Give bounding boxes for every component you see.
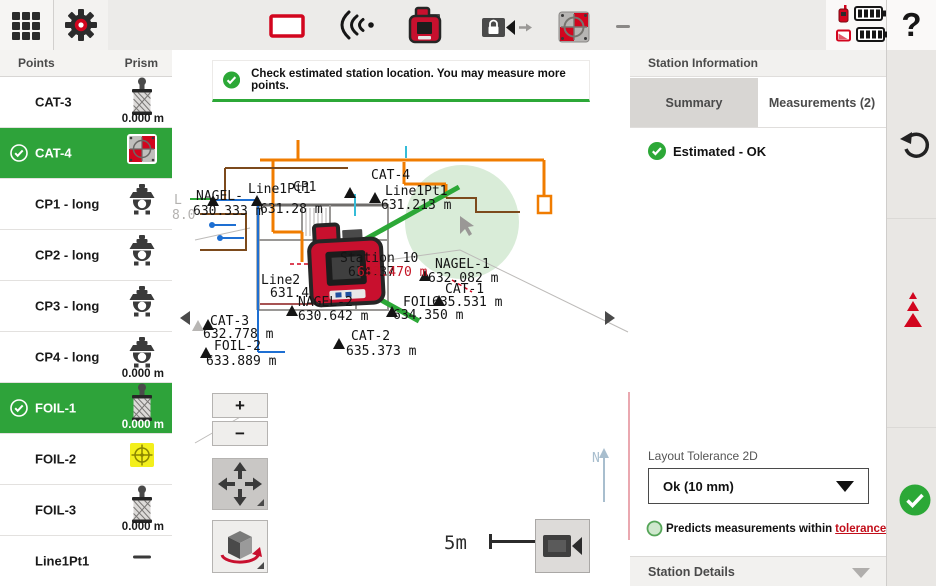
- station-button[interactable]: [406, 6, 444, 49]
- signal-button[interactable]: [340, 9, 380, 46]
- map-point-label: 630.642 m: [298, 309, 369, 324]
- point-row[interactable]: CP3 - long: [0, 281, 172, 332]
- signal-waves-icon: [340, 9, 380, 41]
- prism-icon-host: [124, 437, 160, 473]
- points-column-header: Points: [18, 56, 55, 70]
- undo-icon: [898, 126, 934, 162]
- station-device-glyph-icon: [838, 5, 849, 23]
- status-check-icon: [648, 142, 666, 160]
- tolerance-dropdown[interactable]: Ok (10 mm): [648, 468, 869, 504]
- map-point-label: 631.213 m: [381, 198, 452, 213]
- point-row[interactable]: Line1Pt1: [0, 536, 172, 586]
- confirm-check-icon: [898, 483, 932, 517]
- north-arrow-icon: N: [592, 448, 609, 502]
- tolerance-link[interactable]: tolerance: [835, 523, 886, 535]
- target-plate-icon: [127, 134, 157, 164]
- layout-rectangle-icon: [268, 13, 306, 39]
- target-yellow-icon: [129, 442, 155, 468]
- map-point-label: CAT-2: [351, 329, 390, 344]
- red-triangles-icon: [898, 292, 928, 338]
- point-row[interactable]: CP1 - long: [0, 179, 172, 230]
- map-point-label: 633.470 m: [357, 265, 428, 280]
- layout-tolerance-label: Layout Tolerance 2D: [648, 449, 758, 463]
- app-window: ? Points Prism CAT-3 0.000 m: [0, 0, 936, 586]
- point-list: CAT-3 0.000 m CAT-4: [0, 77, 172, 586]
- map-point-label: 631.28 m: [260, 202, 323, 217]
- point-label: FOIL-3: [35, 503, 76, 518]
- prism-long-icon: [125, 285, 159, 319]
- prism-icon-host: [124, 80, 160, 116]
- station-information-header: Station Information: [630, 50, 886, 77]
- message-text: Check estimated station location. You ma…: [251, 68, 589, 92]
- map-point-label: L: [174, 193, 182, 208]
- prism-long-icon: [125, 234, 159, 268]
- map-point-label: 8.0: [172, 208, 195, 223]
- battery-status: [826, 0, 887, 50]
- map-point-label: NAGEL-: [196, 189, 243, 204]
- sidebar-header: Points Prism: [0, 50, 172, 77]
- point-label: CAT-4: [35, 146, 72, 161]
- grid-menu-icon: [12, 12, 40, 40]
- selected-check-icon: [9, 398, 29, 418]
- point-row[interactable]: CP2 - long: [0, 230, 172, 281]
- point-row[interactable]: FOIL-3 0.000 m: [0, 485, 172, 536]
- total-station-icon: [406, 6, 444, 44]
- top-toolbar: ?: [0, 0, 936, 50]
- collapse-sidebar-arrow[interactable]: [180, 311, 190, 325]
- map-point-label: CAT-4: [371, 168, 410, 183]
- map-point-label: 631.4: [270, 286, 309, 301]
- check-circle-icon: [223, 71, 240, 89]
- scale-bar: [490, 540, 536, 543]
- rotate-3d-cube-icon: [216, 525, 264, 569]
- prism-long-icon: [125, 183, 159, 217]
- station-status: Estimated - OK: [648, 142, 766, 160]
- gear-icon: [64, 8, 98, 42]
- prism-long-icon: [125, 336, 159, 370]
- camera-icon: [540, 531, 586, 561]
- camera-lock-button[interactable]: [480, 14, 534, 45]
- zoom-out-button[interactable]: −: [212, 421, 268, 446]
- point-row[interactable]: CAT-3 0.000 m: [0, 77, 172, 128]
- map-point-label: Station 10: [340, 251, 418, 266]
- tablet-battery-level-icon: [856, 27, 889, 43]
- point-label: FOIL-2: [35, 452, 76, 467]
- rail-divider: [887, 427, 936, 428]
- camera-view-button[interactable]: [535, 519, 590, 573]
- camera-lock-icon: [480, 14, 534, 40]
- rail-divider: [887, 218, 936, 219]
- map-point-triangle: [344, 187, 356, 198]
- minimize-dash-icon: [616, 25, 630, 28]
- tolerance-value: Ok (10 mm): [663, 479, 734, 494]
- map-point-label: CP1: [293, 180, 316, 195]
- prism-icon-host: [124, 386, 160, 422]
- map-point-label: 633.889 m: [206, 354, 277, 369]
- help-question-label: ?: [887, 0, 936, 50]
- rotate-3d-button[interactable]: [212, 520, 268, 573]
- target-plate-button[interactable]: [558, 11, 590, 48]
- pan-button[interactable]: [212, 458, 268, 510]
- points-sidebar: Points Prism CAT-3 0.000 m CAT-4: [0, 50, 173, 586]
- point-label: CP3 - long: [35, 299, 99, 314]
- point-label: Line1Pt1: [35, 554, 89, 569]
- tab-summary[interactable]: Summary: [630, 78, 758, 128]
- selected-check-icon: [9, 143, 29, 163]
- dash-icon: [132, 554, 152, 560]
- point-label: FOIL-1: [35, 401, 76, 416]
- map-point-label: 630.333 m: [193, 204, 264, 219]
- prism-column-header: Prism: [125, 56, 158, 70]
- prism-icon-host: [124, 233, 160, 269]
- settings-button[interactable]: [54, 0, 108, 50]
- tolerance-dot-icon: [646, 520, 663, 537]
- point-label: CAT-3: [35, 95, 72, 110]
- chevron-down-icon: [836, 481, 854, 492]
- north-label: N: [592, 451, 600, 466]
- station-battery-level-icon: [854, 6, 887, 22]
- status-text: Estimated - OK: [673, 144, 766, 159]
- zoom-in-button[interactable]: +: [212, 393, 268, 418]
- tablet-battery-row: [836, 27, 889, 43]
- map-point-label: NAGEL-1: [435, 257, 490, 272]
- station-details-label: Station Details: [648, 565, 735, 579]
- point-label: CP2 - long: [35, 248, 99, 263]
- tolerance-note: Predicts measurements within tolerance: [646, 520, 884, 537]
- station-details-section[interactable]: Station Details: [630, 556, 886, 586]
- prism-icon-host: [124, 182, 160, 218]
- pan-arrows-icon: [217, 461, 263, 507]
- point-row[interactable]: FOIL-2: [0, 434, 172, 485]
- tab-measurements[interactable]: Measurements (2): [758, 78, 886, 128]
- point-row[interactable]: FOIL-1 0.000 m: [0, 383, 172, 434]
- scale-label: 5m: [444, 532, 467, 554]
- layout-view-button[interactable]: [268, 13, 306, 44]
- station-battery-row: [838, 5, 887, 23]
- prism-offset: 0.000 m: [122, 419, 164, 431]
- prism-offset: 0.000 m: [122, 368, 164, 380]
- point-row[interactable]: CP4 - long 0.000 m: [0, 332, 172, 383]
- map-point-label: Line1Pt1: [385, 184, 448, 199]
- prism-icon-host: [124, 488, 160, 524]
- prism-icon-host: [124, 335, 160, 371]
- prism-offset: 0.000 m: [122, 113, 164, 125]
- map-point-label: 634.350 m: [393, 308, 464, 323]
- point-row[interactable]: CAT-4: [0, 128, 172, 179]
- prism-height-indicator[interactable]: [898, 292, 928, 343]
- app-menu-button[interactable]: [0, 0, 54, 50]
- point-label: CP4 - long: [35, 350, 99, 365]
- station-information-panel: [630, 50, 886, 586]
- prism-icon-host: [124, 131, 160, 167]
- tolerance-note-text: Predicts measurements within: [666, 523, 832, 535]
- prism-icon-host: [124, 539, 160, 575]
- map-point-label: 635.373 m: [346, 344, 417, 359]
- map-point-triangle: [333, 338, 345, 349]
- station-message-banner: Check estimated station location. You ma…: [212, 60, 590, 102]
- tablet-glyph-icon: [836, 29, 851, 42]
- details-chevron-icon: [852, 568, 870, 578]
- help-button[interactable]: ?: [887, 0, 936, 50]
- map-point-triangle: [369, 192, 381, 203]
- prism-icon-host: [124, 284, 160, 320]
- prism-offset: 0.000 m: [122, 521, 164, 533]
- confirm-button[interactable]: [898, 483, 932, 522]
- target-plate-icon: [558, 11, 590, 43]
- expand-panel-arrow[interactable]: [605, 311, 615, 325]
- map-point-label: FOIL-2: [214, 339, 261, 354]
- undo-button[interactable]: [898, 126, 934, 167]
- point-label: CP1 - long: [35, 197, 99, 212]
